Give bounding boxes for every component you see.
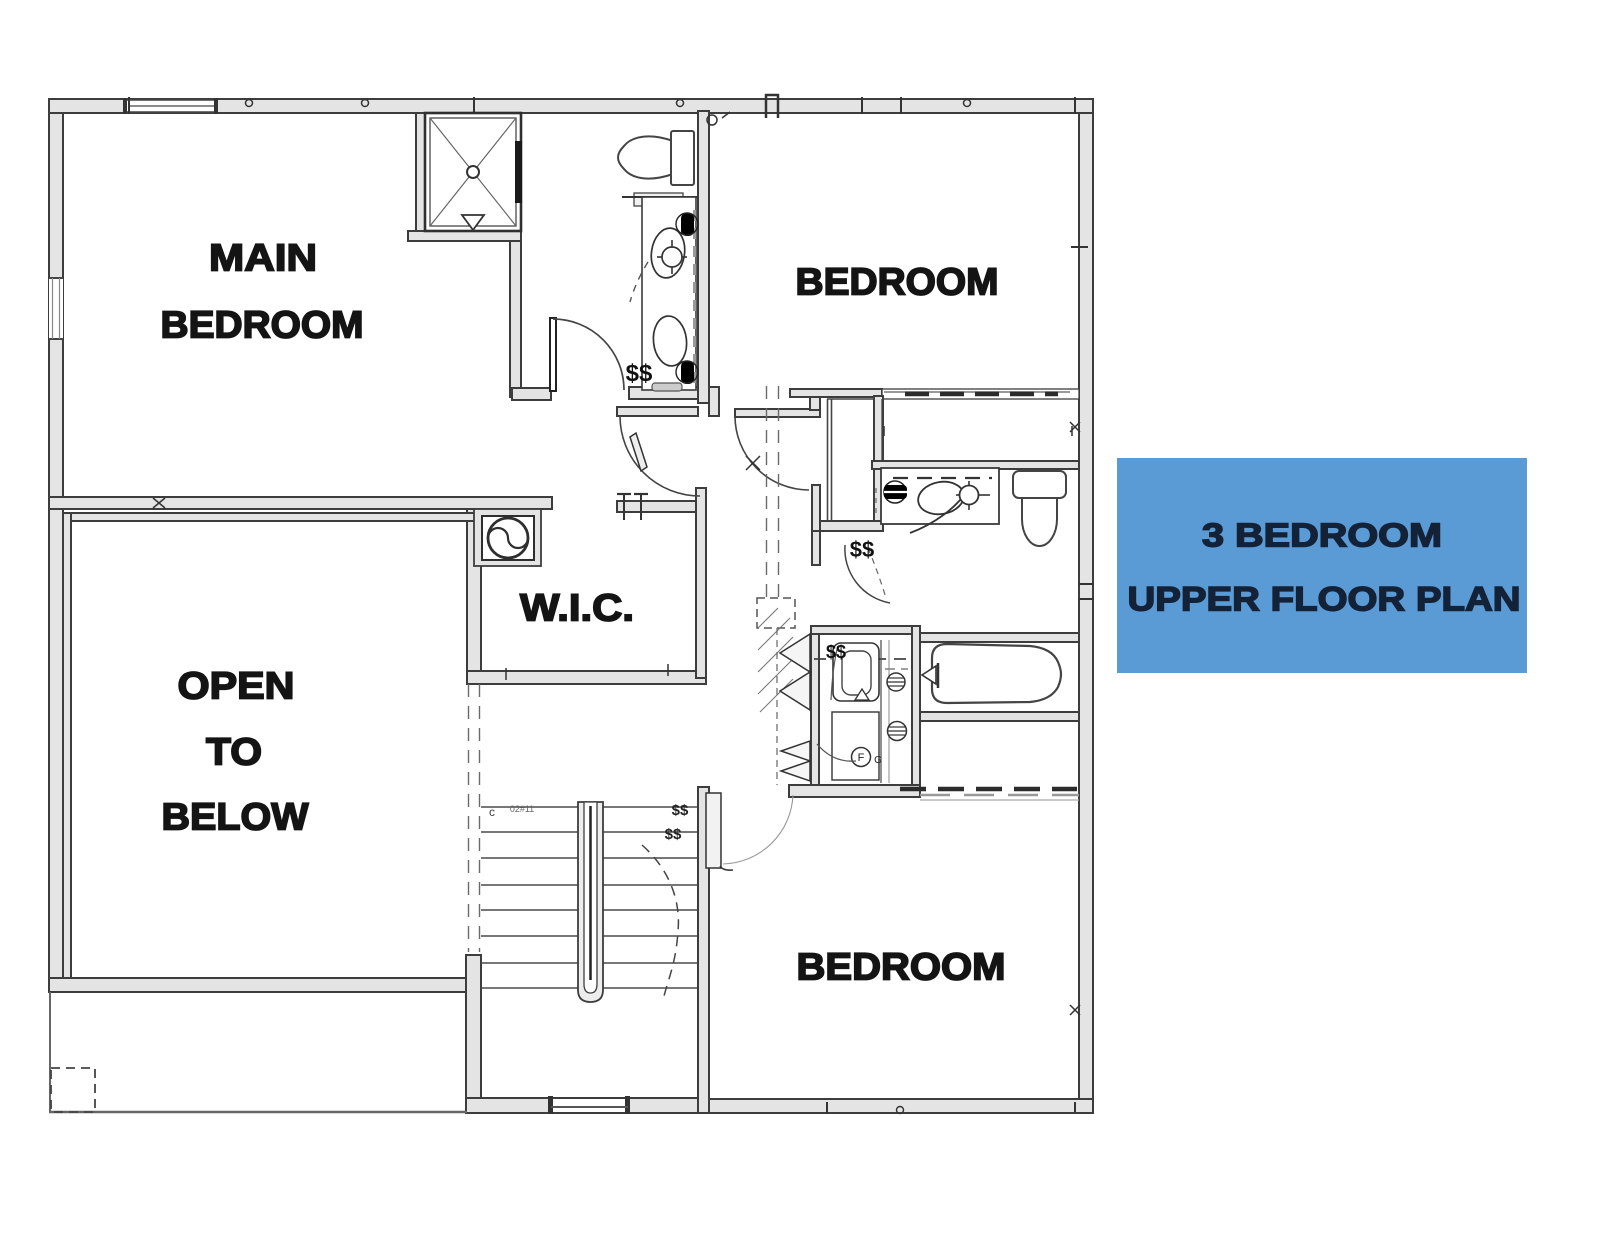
svg-text:$$: $$ bbox=[626, 360, 653, 387]
svg-text:OPEN: OPEN bbox=[178, 666, 295, 708]
svg-text:UPPER FLOOR PLAN: UPPER FLOOR PLAN bbox=[1128, 581, 1521, 619]
svg-text:$$: $$ bbox=[672, 802, 689, 819]
svg-text:G: G bbox=[874, 755, 882, 766]
svg-text:BEDROOM: BEDROOM bbox=[797, 947, 1006, 989]
svg-text:BEDROOM: BEDROOM bbox=[796, 262, 999, 304]
svg-text:$$: $$ bbox=[665, 826, 682, 843]
svg-text:F: F bbox=[858, 752, 865, 764]
svg-text:c: c bbox=[489, 805, 495, 819]
svg-text:W.I.C.: W.I.C. bbox=[520, 588, 634, 630]
svg-text:3 BEDROOM: 3 BEDROOM bbox=[1202, 517, 1442, 554]
svg-text:BEDROOM: BEDROOM bbox=[161, 305, 364, 347]
svg-text:02#11: 02#11 bbox=[510, 804, 534, 814]
svg-text:MAIN: MAIN bbox=[209, 238, 317, 280]
svg-text:$$: $$ bbox=[826, 642, 846, 662]
svg-text:BELOW: BELOW bbox=[162, 797, 309, 839]
svg-text:TO: TO bbox=[206, 732, 262, 774]
svg-text:$$: $$ bbox=[850, 537, 874, 562]
